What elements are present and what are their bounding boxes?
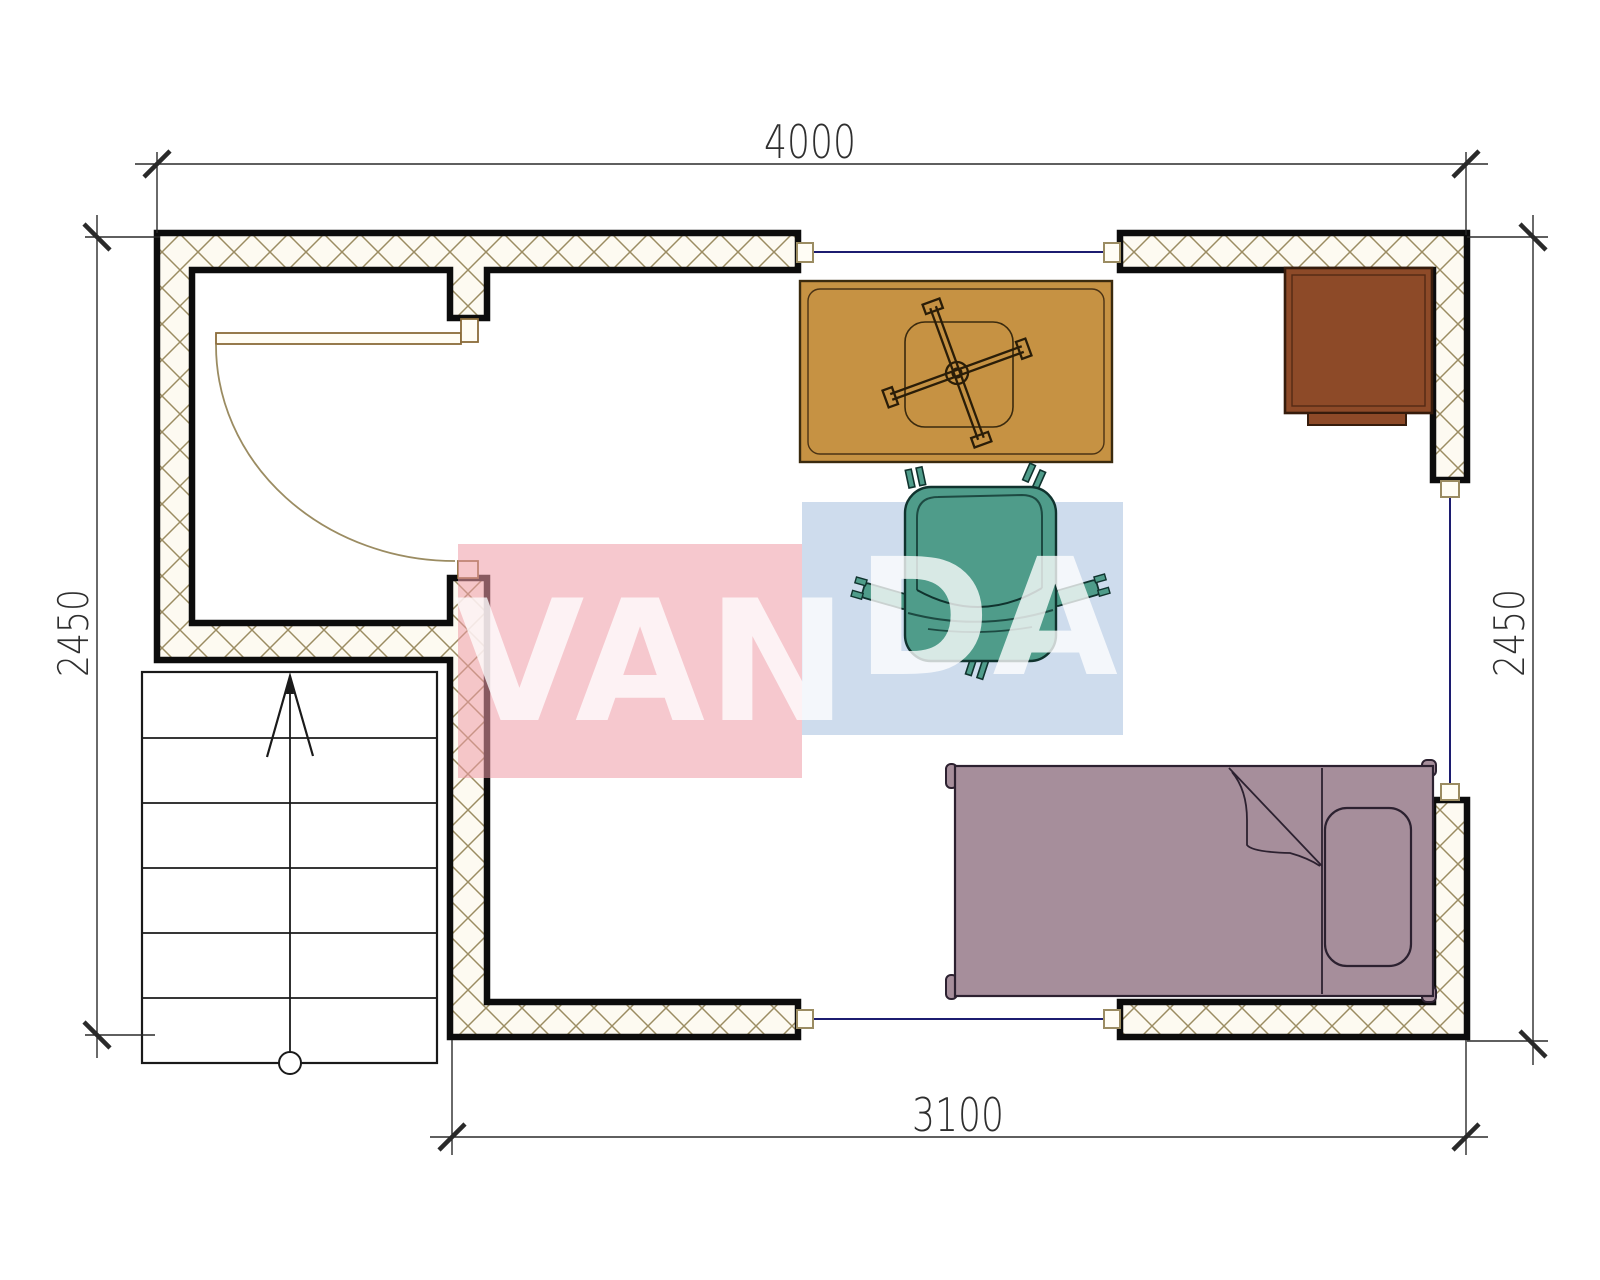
bed bbox=[946, 760, 1436, 1002]
dimension-label-top: 4000 bbox=[764, 115, 856, 169]
chair-caster bbox=[905, 467, 925, 488]
nightstand bbox=[1285, 268, 1432, 425]
door-frame-hinge bbox=[461, 319, 478, 342]
nightstand-drawer-tab bbox=[1308, 413, 1406, 425]
door-swing-arc bbox=[216, 345, 455, 561]
dimension-label-left: 2450 bbox=[49, 589, 98, 677]
window-frame-connector bbox=[1441, 481, 1459, 497]
table-top bbox=[800, 281, 1112, 462]
staircase bbox=[142, 672, 437, 1074]
chair-caster bbox=[1022, 463, 1047, 489]
window-frame-connector bbox=[1104, 243, 1120, 262]
stair-start-circle bbox=[279, 1052, 301, 1074]
watermark-text-da: DA bbox=[856, 525, 1120, 713]
floor-plan-canvas: 4000 3100 2450 2450 bbox=[0, 0, 1600, 1280]
window-frame-connector bbox=[797, 1010, 813, 1028]
door-leaf bbox=[216, 333, 461, 344]
window-frame-connector bbox=[1104, 1010, 1120, 1028]
coffee-table bbox=[800, 276, 1112, 471]
window-frame-connector bbox=[1441, 784, 1459, 800]
watermark-text-van: VAN bbox=[454, 564, 849, 760]
dimension-label-right: 2450 bbox=[1485, 589, 1534, 677]
nightstand-top bbox=[1285, 268, 1432, 413]
window-frame-connector bbox=[797, 243, 813, 262]
dimension-label-bottom: 3100 bbox=[912, 1088, 1004, 1142]
door bbox=[216, 319, 478, 578]
pillow bbox=[1325, 808, 1411, 966]
floor-plan-drawing: 4000 3100 2450 2450 bbox=[0, 0, 1600, 1280]
